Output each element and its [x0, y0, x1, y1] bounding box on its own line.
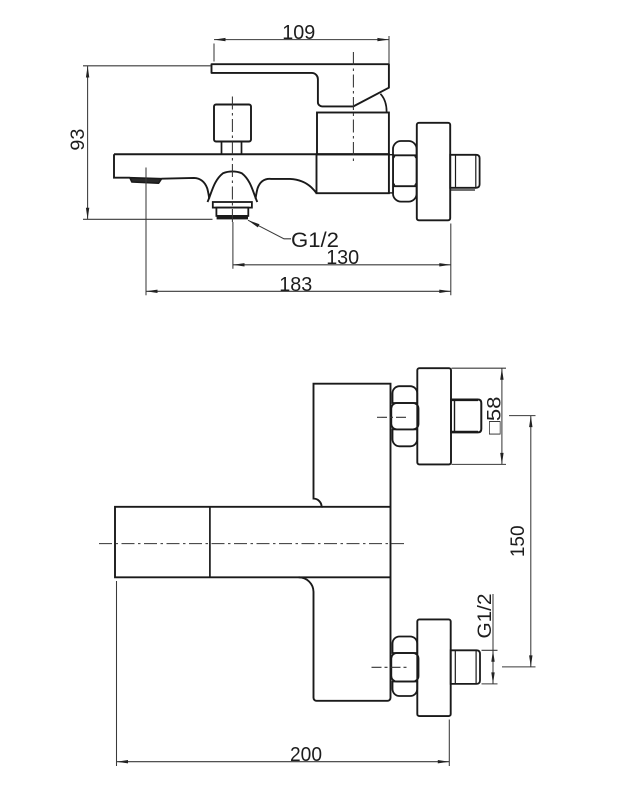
svg-text:□58: □58 [484, 397, 505, 435]
svg-text:109: 109 [282, 22, 315, 44]
svg-text:183: 183 [279, 274, 312, 296]
svg-text:200: 200 [290, 744, 322, 766]
svg-text:130: 130 [326, 247, 359, 269]
svg-text:93: 93 [68, 129, 89, 151]
svg-text:150: 150 [508, 525, 529, 557]
svg-text:G1/2: G1/2 [474, 594, 496, 639]
